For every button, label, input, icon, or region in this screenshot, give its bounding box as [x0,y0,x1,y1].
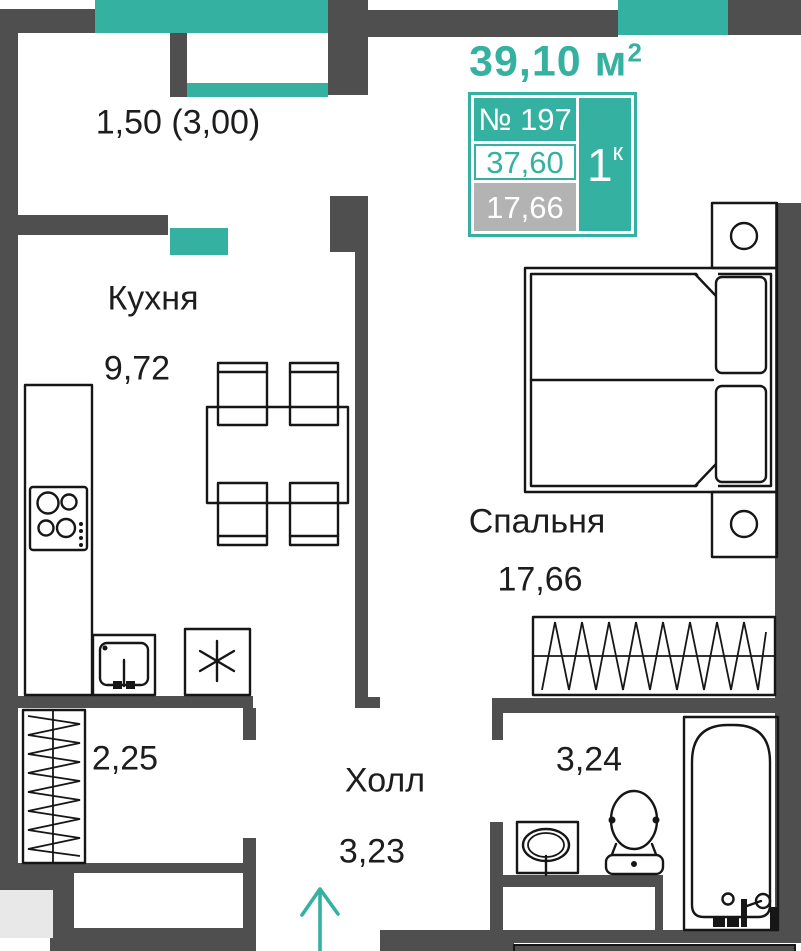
kitchen-sink [93,635,155,695]
unit-living-area-badge: 17,66 [474,183,576,231]
unit-number-badge: № 197 [474,98,576,141]
kitchen-window [187,83,328,97]
kitchen-counter [25,385,92,695]
walls [0,0,801,951]
entrance-arrow-icon [302,889,338,951]
toilet [606,791,663,874]
total-area-heading: 39,10 м2 [469,38,643,87]
lower-unit-edge [514,945,795,951]
kitchen-name-label: Кухня [108,280,199,319]
bathroom-area-label: 3,24 [556,741,622,780]
unit-rooms-badge: 1к [579,98,631,231]
dining-table [207,407,348,503]
stove [30,487,87,550]
hall-name-label: Холл [345,762,425,801]
dining-table-chairs [207,363,348,545]
balcony-door-glazing [170,228,228,255]
pillow [716,277,766,373]
balcony-glazing [95,0,328,33]
bedroom-window [618,0,728,35]
hall-wardrobe [23,710,85,863]
bed [525,268,777,492]
nightstand-bottom [712,492,777,557]
balcony-area-label: 1,50 (3,00) [96,104,260,143]
hall-area-label: 3,23 [339,833,405,872]
unit-total-area-value: 37,60 [474,144,576,180]
kitchen-area-label: 9,72 [104,350,170,389]
washbasin [517,822,578,875]
asterisk-icon [200,641,234,681]
kitchen-cabinet [185,629,250,695]
unit-info-left-column: № 197 37,60 17,66 [474,98,576,231]
floor-plan: 39,10 м2 № 197 37,60 17,66 1к 1,50 (3,00… [0,0,801,951]
floor-plan-drawing [0,0,801,951]
bedroom-area-label: 17,66 [497,561,582,600]
wardrobe-area-label: 2,25 [92,740,158,779]
bedroom-wardrobe [533,617,775,695]
nightstand-top [712,203,777,268]
bedroom-name-label: Спальня [469,503,606,542]
unit-info-card[interactable]: № 197 37,60 17,66 1к [468,92,637,237]
bathtub [684,717,778,930]
shaft-block [0,890,53,938]
pillow [716,386,766,482]
